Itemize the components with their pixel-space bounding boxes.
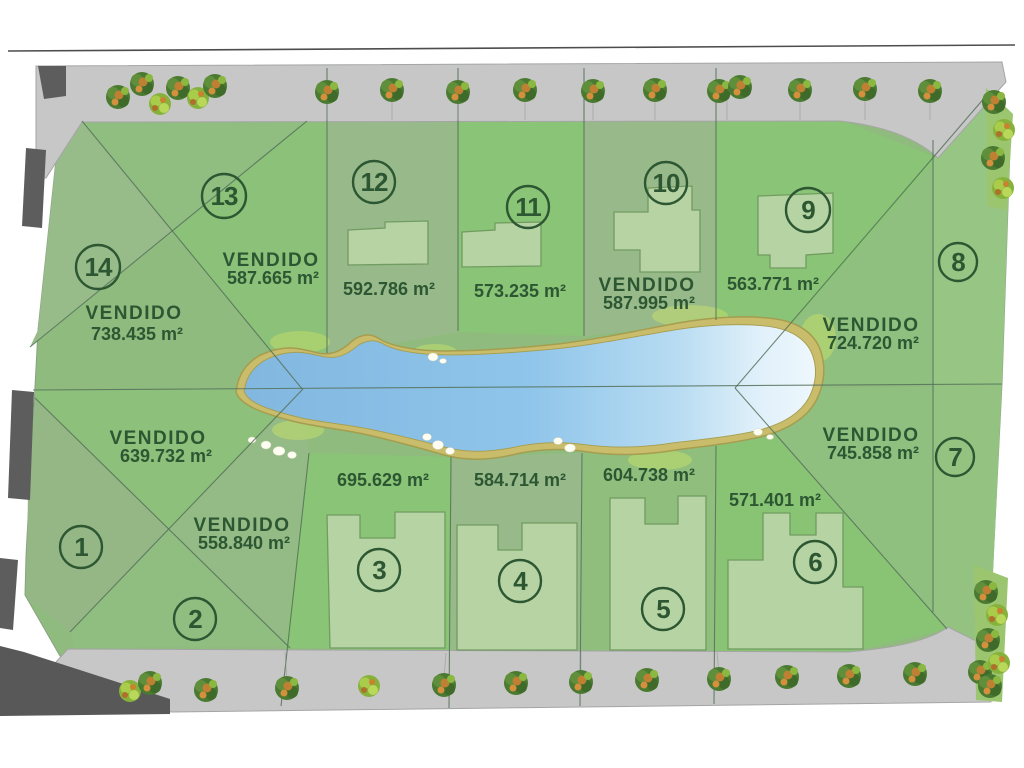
lot-label-8: VENDIDO 724.720 m²: [822, 315, 919, 353]
tree-icon: [707, 667, 731, 691]
sold-label: VENDIDO: [85, 303, 182, 324]
lot-number: 14: [85, 252, 113, 282]
bush-icon: [358, 675, 380, 697]
wall-segment: [8, 390, 34, 500]
area-label: 587.995 m²: [603, 293, 695, 313]
rock: [440, 359, 447, 364]
tree-icon: [978, 674, 1002, 698]
lot-label-10: VENDIDO 587.995 m²: [598, 275, 695, 313]
area-label: 695.629 m²: [337, 470, 429, 490]
lot-number: 3: [372, 555, 386, 585]
tree-icon: [981, 146, 1005, 170]
area-label: 738.435 m²: [91, 324, 183, 344]
lot-label-12: 592.786 m²: [343, 279, 435, 299]
rock: [428, 353, 438, 361]
wall-segment: [22, 148, 46, 228]
bush-icon: [988, 652, 1010, 674]
lot-label-7: VENDIDO 745.858 m²: [822, 425, 919, 463]
lot-number: 2: [188, 604, 202, 634]
lot-number: 7: [948, 442, 962, 472]
lot-label-14: VENDIDO 738.435 m²: [85, 303, 183, 344]
rock: [273, 447, 285, 456]
tree-icon: [918, 79, 942, 103]
lot-label-11: 573.235 m²: [474, 281, 566, 301]
rock: [433, 441, 444, 450]
tree-icon: [837, 664, 861, 688]
area-label: 573.235 m²: [474, 281, 566, 301]
area-label: 639.732 m²: [120, 446, 212, 466]
lot-label-4: 584.714 m²: [474, 470, 566, 490]
lot-label-9: 563.771 m²: [727, 274, 819, 294]
area-label: 592.786 m²: [343, 279, 435, 299]
rock: [288, 452, 297, 459]
area-label: 604.738 m²: [603, 465, 695, 485]
tree-icon: [707, 79, 731, 103]
tree-icon: [974, 580, 998, 604]
lot-label-13: VENDIDO 587.665 m²: [222, 250, 319, 288]
tree-icon: [166, 76, 190, 100]
lot-number: 8: [951, 247, 965, 277]
tree-icon: [380, 78, 404, 102]
bush-icon: [119, 680, 141, 702]
area-label: 745.858 m²: [827, 443, 919, 463]
rock: [261, 441, 271, 449]
tree-icon: [728, 75, 752, 99]
tree-icon: [788, 78, 812, 102]
tree-icon: [903, 662, 927, 686]
lot-number: 6: [808, 547, 822, 577]
tree-icon: [569, 670, 593, 694]
lot-number: 4: [513, 566, 528, 596]
lot-label-5: 604.738 m²: [603, 465, 695, 485]
tree-icon: [643, 78, 667, 102]
lot-number: 13: [211, 181, 238, 211]
tree-icon: [203, 74, 227, 98]
bush-icon: [149, 93, 171, 115]
area-label: 563.771 m²: [727, 274, 819, 294]
tree-icon: [194, 678, 218, 702]
lot-label-6: 571.401 m²: [729, 490, 821, 510]
tree-icon: [446, 80, 470, 104]
tree-icon: [130, 72, 154, 96]
tree-icon: [275, 676, 299, 700]
lot-number: 5: [656, 594, 670, 624]
tree-icon: [513, 78, 537, 102]
tree-icon: [315, 80, 339, 104]
tree-icon: [138, 671, 162, 695]
tree-icon: [581, 79, 605, 103]
tree-icon: [853, 77, 877, 101]
tree-icon: [106, 85, 130, 109]
bush-icon: [986, 604, 1008, 626]
bush-icon: [992, 177, 1014, 199]
tree-icon: [982, 90, 1006, 114]
lot-number: 9: [801, 195, 815, 225]
area-label: 584.714 m²: [474, 470, 566, 490]
lot-label-1: VENDIDO 639.732 m²: [109, 428, 212, 466]
tree-icon: [432, 673, 456, 697]
lot-label-2: VENDIDO 558.840 m²: [193, 515, 290, 553]
rock: [754, 429, 763, 436]
rock: [423, 434, 432, 441]
tree-icon: [635, 668, 659, 692]
lot-label-3: 695.629 m²: [337, 470, 429, 490]
tree-icon: [504, 671, 528, 695]
area-label: 571.401 m²: [729, 490, 821, 510]
rock: [554, 438, 563, 445]
lot-number: 1: [74, 532, 88, 562]
lot-number: 10: [653, 168, 680, 198]
lot-number: 11: [515, 192, 541, 222]
bush-icon: [993, 119, 1015, 141]
lot-number: 12: [361, 167, 388, 197]
rock: [565, 444, 576, 452]
area-label: 724.720 m²: [827, 333, 919, 353]
area-label: 587.665 m²: [227, 268, 319, 288]
rock: [767, 435, 774, 440]
area-label: 558.840 m²: [198, 533, 290, 553]
site-plan-map: 1 2 3 4 5 6 7 8 9 10 11 12 13 14 VENDIDO…: [0, 0, 1024, 768]
tree-icon: [775, 665, 799, 689]
tree-icon: [976, 628, 1000, 652]
rock: [446, 448, 455, 455]
